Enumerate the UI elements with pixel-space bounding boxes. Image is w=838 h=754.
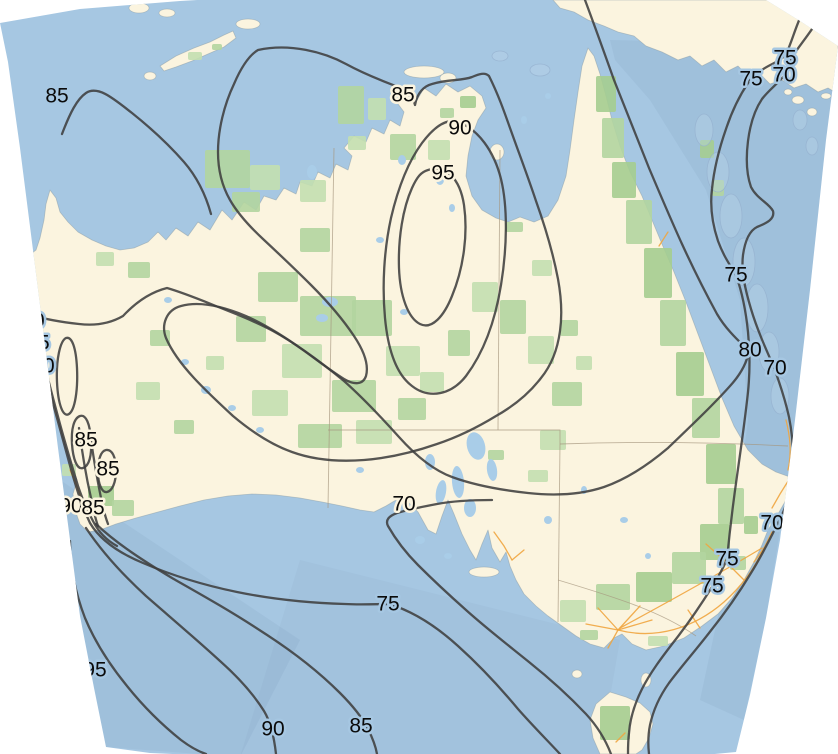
vegetation-patch — [644, 248, 672, 298]
vegetation-patch — [576, 356, 592, 370]
figure-canvas: 8585909575757075807080757085859085707595… — [0, 0, 838, 754]
reef-outline — [492, 51, 508, 61]
contour-label: 75 — [26, 332, 49, 355]
vegetation-patch — [332, 380, 376, 412]
vegetation-patch — [600, 706, 630, 740]
vegetation-patch — [205, 150, 250, 188]
contour-label: 80 — [21, 310, 44, 333]
vegetation-patch — [626, 200, 652, 244]
vegetation-patch — [648, 636, 668, 646]
vegetation-patch — [505, 222, 523, 232]
contour-label: 75 — [739, 68, 762, 91]
small-island — [784, 89, 792, 95]
vegetation-patch — [300, 228, 330, 252]
lake — [415, 536, 425, 544]
australia-contour-map: 8585909575757075807080757085859085707595… — [0, 0, 838, 754]
vegetation-patch — [96, 252, 114, 266]
vegetation-patch — [258, 272, 298, 302]
contour-label: 85 — [45, 85, 68, 108]
reef-outline — [806, 137, 818, 155]
lake — [545, 93, 551, 99]
vegetation-patch — [540, 430, 566, 450]
small-island — [159, 9, 175, 17]
lake — [356, 467, 364, 473]
small-island — [792, 96, 804, 104]
vegetation-patch — [348, 136, 366, 150]
vegetation-patch — [420, 372, 444, 392]
reef-outline — [695, 114, 713, 146]
vegetation-patch — [692, 398, 720, 438]
contour-label: 75 — [700, 575, 723, 598]
contour-label: 70 — [772, 64, 795, 87]
lake — [164, 297, 172, 303]
vegetation-patch — [660, 300, 686, 346]
lake — [398, 155, 406, 165]
small-island — [572, 670, 582, 678]
vegetation-patch — [636, 572, 672, 602]
vegetation-patch — [300, 180, 326, 202]
contour-label: 75 — [376, 593, 399, 616]
vegetation-patch — [744, 516, 758, 534]
vegetation-patch — [676, 352, 704, 396]
lake — [444, 553, 452, 559]
lake — [256, 427, 264, 433]
contour-label: 85 — [74, 429, 97, 452]
small-island — [129, 3, 149, 13]
vegetation-patch — [528, 470, 548, 482]
vegetation-patch — [602, 118, 624, 158]
small-island — [404, 66, 444, 78]
map-layers: 8585909575757075807080757085859085707595… — [0, 0, 838, 754]
lake — [544, 516, 552, 524]
vegetation-patch — [212, 44, 222, 50]
vegetation-patch — [532, 260, 552, 276]
contour-label: 70 — [763, 357, 786, 380]
vegetation-patch — [596, 76, 616, 112]
contour-label: 95 — [83, 659, 106, 682]
vegetation-patch — [112, 500, 134, 516]
contour-label: 90 — [448, 117, 471, 140]
contour-label: 70 — [392, 493, 415, 516]
contour-label: 75 — [715, 548, 738, 571]
vegetation-patch — [528, 336, 554, 364]
lake — [307, 165, 317, 179]
vegetation-patch — [560, 320, 578, 336]
vegetation-patch — [338, 86, 364, 124]
vegetation-patch — [706, 444, 736, 484]
contour-label: 80 — [738, 339, 761, 362]
vegetation-patch — [128, 262, 150, 278]
lake — [376, 237, 384, 243]
vegetation-patch — [552, 382, 582, 406]
lake — [449, 204, 455, 212]
vegetation-patch — [580, 630, 598, 640]
vegetation-patch — [428, 140, 450, 160]
contour-label: 70 — [31, 355, 54, 378]
reef-outline — [530, 64, 550, 76]
contour-label: 95 — [431, 162, 454, 185]
vegetation-patch — [136, 382, 160, 400]
vegetation-patch — [174, 420, 194, 434]
reef-outline — [720, 194, 742, 238]
lake — [521, 116, 527, 124]
contour-label: 90 — [261, 718, 284, 741]
contour-label: 85 — [349, 715, 372, 738]
lake — [620, 517, 628, 523]
contour-label: 75 — [724, 264, 747, 287]
small-island — [807, 108, 817, 116]
lake — [316, 314, 328, 322]
vegetation-patch — [448, 330, 470, 356]
vegetation-patch — [488, 450, 504, 460]
lake — [228, 405, 236, 411]
vegetation-patch — [460, 96, 476, 108]
small-island — [490, 144, 504, 160]
vegetation-patch — [206, 356, 224, 370]
vegetation-patch — [398, 398, 426, 420]
vegetation-patch — [500, 300, 526, 334]
small-island — [821, 93, 831, 99]
vegetation-patch — [612, 162, 636, 198]
contour-label: 90 — [59, 495, 82, 518]
vegetation-patch — [560, 600, 586, 622]
vegetation-patch — [368, 98, 386, 120]
reef-outline — [793, 110, 807, 130]
lake — [645, 553, 651, 559]
small-island — [144, 72, 156, 80]
vegetation-patch — [188, 52, 202, 60]
vegetation-patch — [252, 390, 288, 416]
contour-label: 85 — [391, 84, 414, 107]
small-island — [236, 19, 260, 29]
vegetation-patch — [250, 165, 280, 190]
contour-label: 85 — [96, 458, 119, 481]
contour-label: 70 — [760, 512, 783, 535]
vegetation-patch — [298, 424, 342, 448]
contour-label: 85 — [81, 497, 104, 520]
vegetation-patch — [472, 282, 498, 312]
small-island — [469, 567, 499, 577]
